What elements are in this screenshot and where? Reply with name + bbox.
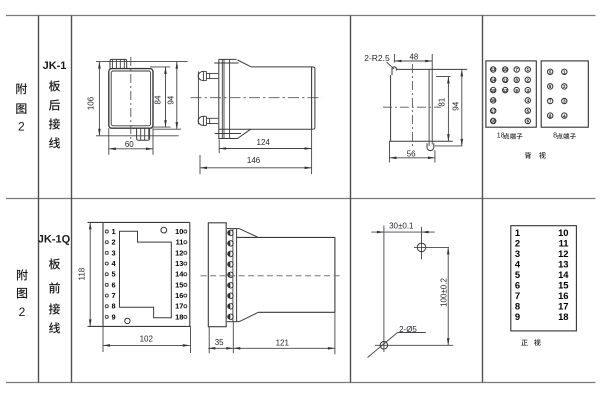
svg-text:13: 13	[558, 258, 568, 269]
svg-text:118: 118	[77, 267, 86, 280]
svg-text:6: 6	[515, 280, 520, 291]
svg-text:48: 48	[409, 52, 418, 61]
svg-text:3: 3	[112, 248, 116, 257]
svg-text:3: 3	[515, 248, 520, 259]
svg-text:1: 1	[112, 227, 116, 236]
svg-text:10: 10	[558, 227, 568, 238]
svg-text:15: 15	[491, 88, 496, 93]
svg-text:11: 11	[176, 238, 184, 247]
svg-text:94: 94	[452, 101, 461, 110]
svg-text:15: 15	[175, 280, 183, 289]
svg-text:35: 35	[215, 338, 224, 347]
svg-text:10: 10	[503, 67, 508, 72]
svg-text:121: 121	[276, 339, 290, 348]
svg-text:7: 7	[112, 291, 116, 300]
svg-text:14: 14	[175, 270, 184, 279]
svg-text:146: 146	[247, 156, 261, 165]
svg-text:JK-1Q: JK-1Q	[38, 233, 71, 245]
svg-text:5: 5	[112, 270, 116, 279]
svg-text:5: 5	[515, 269, 520, 280]
svg-text:81: 81	[438, 97, 447, 106]
svg-text:8: 8	[553, 133, 557, 140]
svg-text:30±0.1: 30±0.1	[389, 221, 414, 230]
svg-text:17: 17	[175, 302, 183, 311]
svg-text:6: 6	[112, 280, 116, 289]
svg-text:11: 11	[559, 237, 569, 248]
svg-text:16: 16	[175, 291, 183, 300]
svg-text:16: 16	[491, 98, 496, 103]
svg-text:17: 17	[491, 108, 496, 113]
svg-text:18: 18	[175, 312, 183, 321]
svg-text:9: 9	[112, 312, 116, 321]
svg-text:11: 11	[503, 78, 508, 83]
svg-text:2: 2	[19, 305, 26, 319]
svg-text:2: 2	[112, 238, 116, 247]
svg-text:12: 12	[175, 248, 183, 257]
svg-text:14: 14	[491, 78, 496, 83]
svg-text:102: 102	[140, 334, 154, 343]
svg-text:1: 1	[515, 227, 520, 238]
svg-text:15: 15	[558, 280, 568, 291]
svg-text:12: 12	[558, 248, 568, 259]
svg-text:12: 12	[503, 88, 508, 93]
svg-text:106: 106	[86, 96, 95, 110]
svg-text:16: 16	[558, 290, 568, 301]
svg-text:13: 13	[491, 67, 496, 72]
svg-text:100±0.2: 100±0.2	[439, 278, 448, 307]
svg-text:2: 2	[18, 119, 25, 133]
svg-text:7: 7	[515, 290, 520, 301]
svg-text:4: 4	[112, 259, 117, 268]
svg-text:8: 8	[112, 302, 116, 311]
svg-text:60: 60	[125, 140, 134, 149]
svg-text:13: 13	[175, 259, 183, 268]
svg-text:4: 4	[515, 258, 521, 269]
svg-text:18: 18	[558, 311, 568, 322]
svg-text:17: 17	[558, 301, 568, 312]
svg-text:56: 56	[407, 150, 416, 159]
svg-text:JK-1: JK-1	[43, 60, 67, 72]
svg-text:14: 14	[558, 269, 569, 280]
svg-text:10: 10	[175, 227, 183, 236]
svg-text:124: 124	[257, 138, 271, 147]
svg-text:9: 9	[515, 311, 520, 322]
svg-text:94: 94	[167, 95, 176, 104]
svg-text:2-R2.5: 2-R2.5	[364, 53, 390, 63]
svg-text:8: 8	[515, 301, 520, 312]
svg-text:2: 2	[515, 237, 520, 248]
svg-text:84: 84	[153, 95, 162, 104]
svg-text:2-Ø5: 2-Ø5	[399, 325, 417, 334]
svg-text:18: 18	[491, 119, 496, 124]
